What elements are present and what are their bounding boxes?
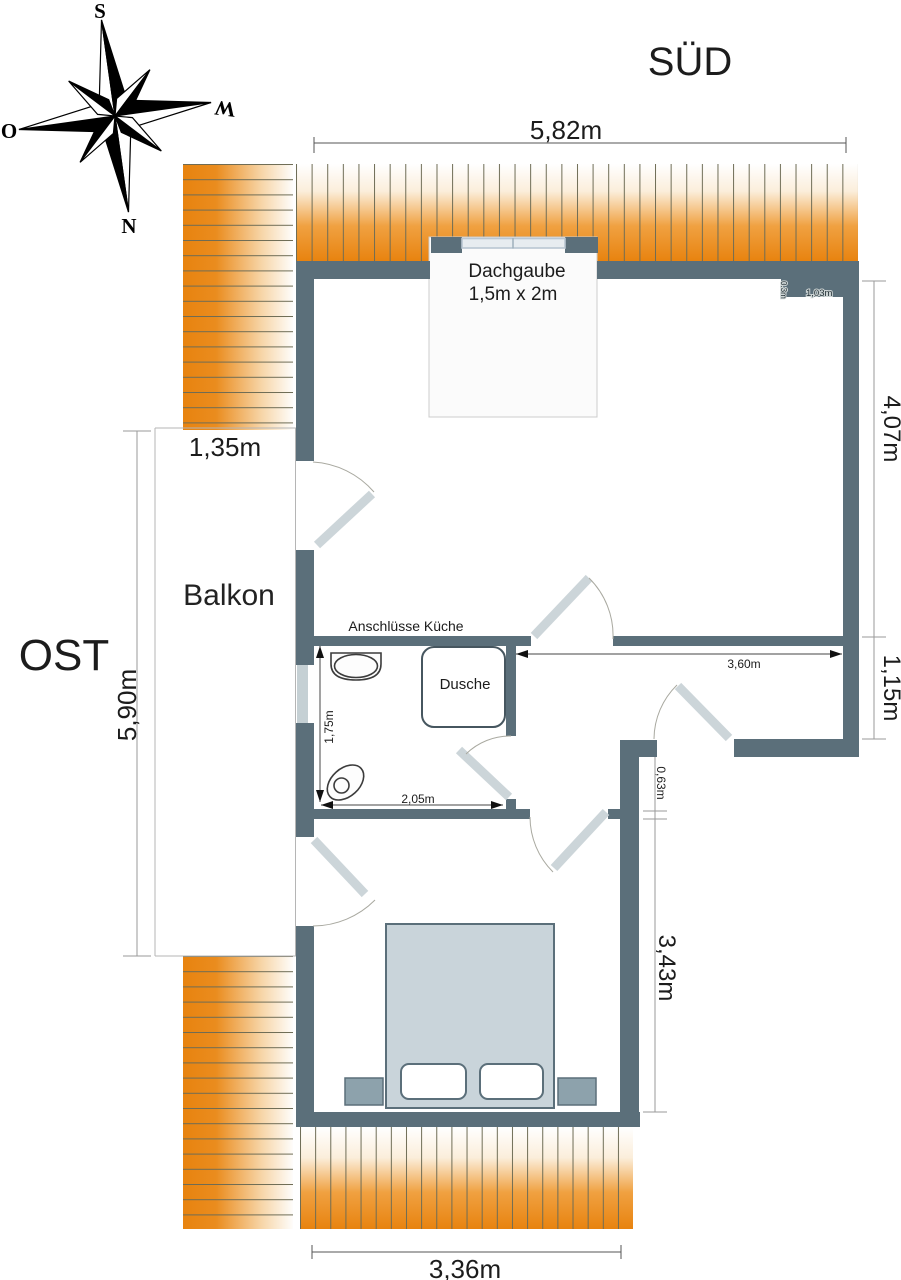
svg-text:4,07m: 4,07m bbox=[878, 396, 901, 463]
svg-text:W: W bbox=[213, 96, 237, 122]
svg-text:Dachgaube: Dachgaube bbox=[468, 261, 565, 282]
svg-text:S: S bbox=[94, 0, 106, 23]
svg-text:Balkon: Balkon bbox=[183, 579, 275, 612]
svg-text:0,63m: 0,63m bbox=[654, 766, 668, 799]
svg-text:1,15m: 1,15m bbox=[878, 655, 901, 722]
svg-text:O: O bbox=[1, 119, 17, 143]
svg-text:5,82m: 5,82m bbox=[530, 115, 602, 145]
svg-text:Dusche: Dusche bbox=[440, 676, 491, 693]
svg-text:1,35m: 1,35m bbox=[189, 432, 261, 462]
svg-text:1,75m: 1,75m bbox=[322, 710, 336, 743]
svg-text:0.3m: 0.3m bbox=[779, 281, 788, 299]
svg-text:SÜD: SÜD bbox=[648, 40, 732, 84]
svg-text:Anschlüsse Küche: Anschlüsse Küche bbox=[348, 618, 463, 634]
svg-text:1,5m x 2m: 1,5m x 2m bbox=[469, 284, 558, 305]
svg-text:3,60m: 3,60m bbox=[727, 657, 760, 671]
svg-text:2,05m: 2,05m bbox=[401, 792, 434, 806]
svg-text:OST: OST bbox=[19, 631, 109, 680]
svg-text:1,03m: 1,03m bbox=[806, 288, 832, 299]
svg-text:3,43m: 3,43m bbox=[653, 935, 680, 1002]
svg-text:3,36m: 3,36m bbox=[429, 1254, 501, 1280]
svg-text:5,90m: 5,90m bbox=[112, 669, 142, 741]
svg-text:N: N bbox=[121, 214, 136, 238]
